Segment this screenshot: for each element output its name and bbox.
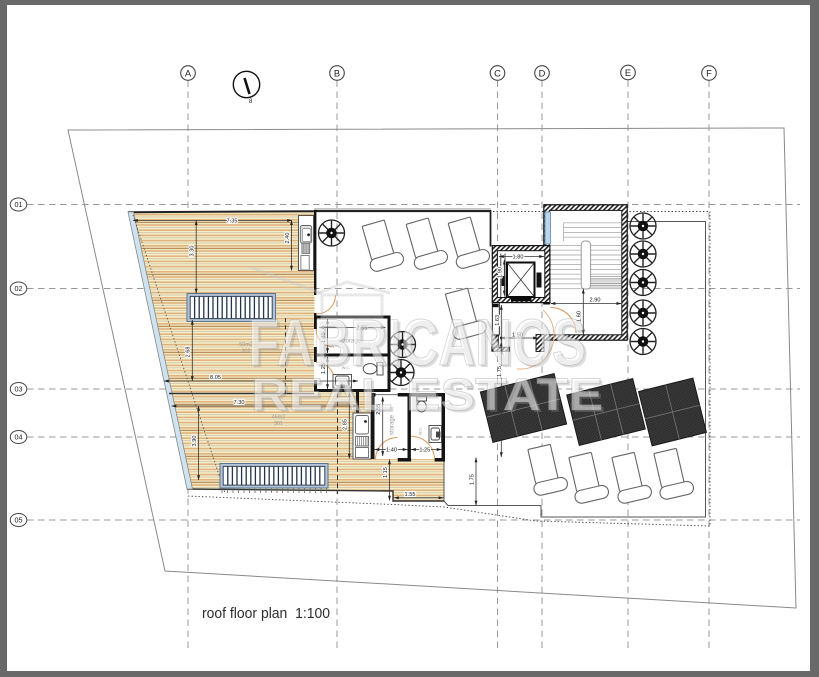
svg-text:1.15: 1.15 [383, 467, 389, 478]
svg-text:03: 03 [15, 385, 23, 394]
svg-text:REAL ESTATE: REAL ESTATE [251, 369, 603, 420]
svg-text:1.55: 1.55 [405, 492, 416, 498]
svg-text:D: D [539, 68, 546, 78]
svg-text:3.30: 3.30 [190, 246, 196, 257]
svg-text:E: E [625, 68, 631, 78]
svg-text:C: C [494, 68, 501, 78]
svg-text:1.25: 1.25 [419, 447, 430, 453]
svg-text:A: A [185, 68, 192, 78]
svg-text:301: 301 [274, 421, 283, 427]
svg-text:2.90: 2.90 [590, 298, 601, 304]
svg-text:2.40: 2.40 [285, 233, 291, 244]
svg-text:02: 02 [15, 284, 23, 293]
svg-text:2.68: 2.68 [186, 347, 192, 358]
svg-text:B: B [334, 68, 340, 78]
svg-text:roof floor plan 1:100: roof floor plan 1:100 [202, 606, 330, 622]
svg-text:01: 01 [15, 200, 23, 209]
svg-text:w.c.: w.c. [419, 427, 424, 435]
svg-text:7.35: 7.35 [227, 218, 238, 224]
svg-text:7.30: 7.30 [234, 400, 245, 406]
svg-text:1.75: 1.75 [469, 474, 475, 485]
svg-text:1.90: 1.90 [498, 267, 504, 278]
svg-text:8.05: 8.05 [210, 375, 221, 381]
svg-text:05: 05 [15, 516, 23, 525]
svg-text:F: F [706, 68, 712, 78]
svg-text:3.90: 3.90 [192, 436, 198, 447]
svg-text:1.80: 1.80 [513, 255, 524, 261]
svg-text:04: 04 [15, 433, 23, 442]
svg-text:1.40: 1.40 [386, 447, 397, 453]
